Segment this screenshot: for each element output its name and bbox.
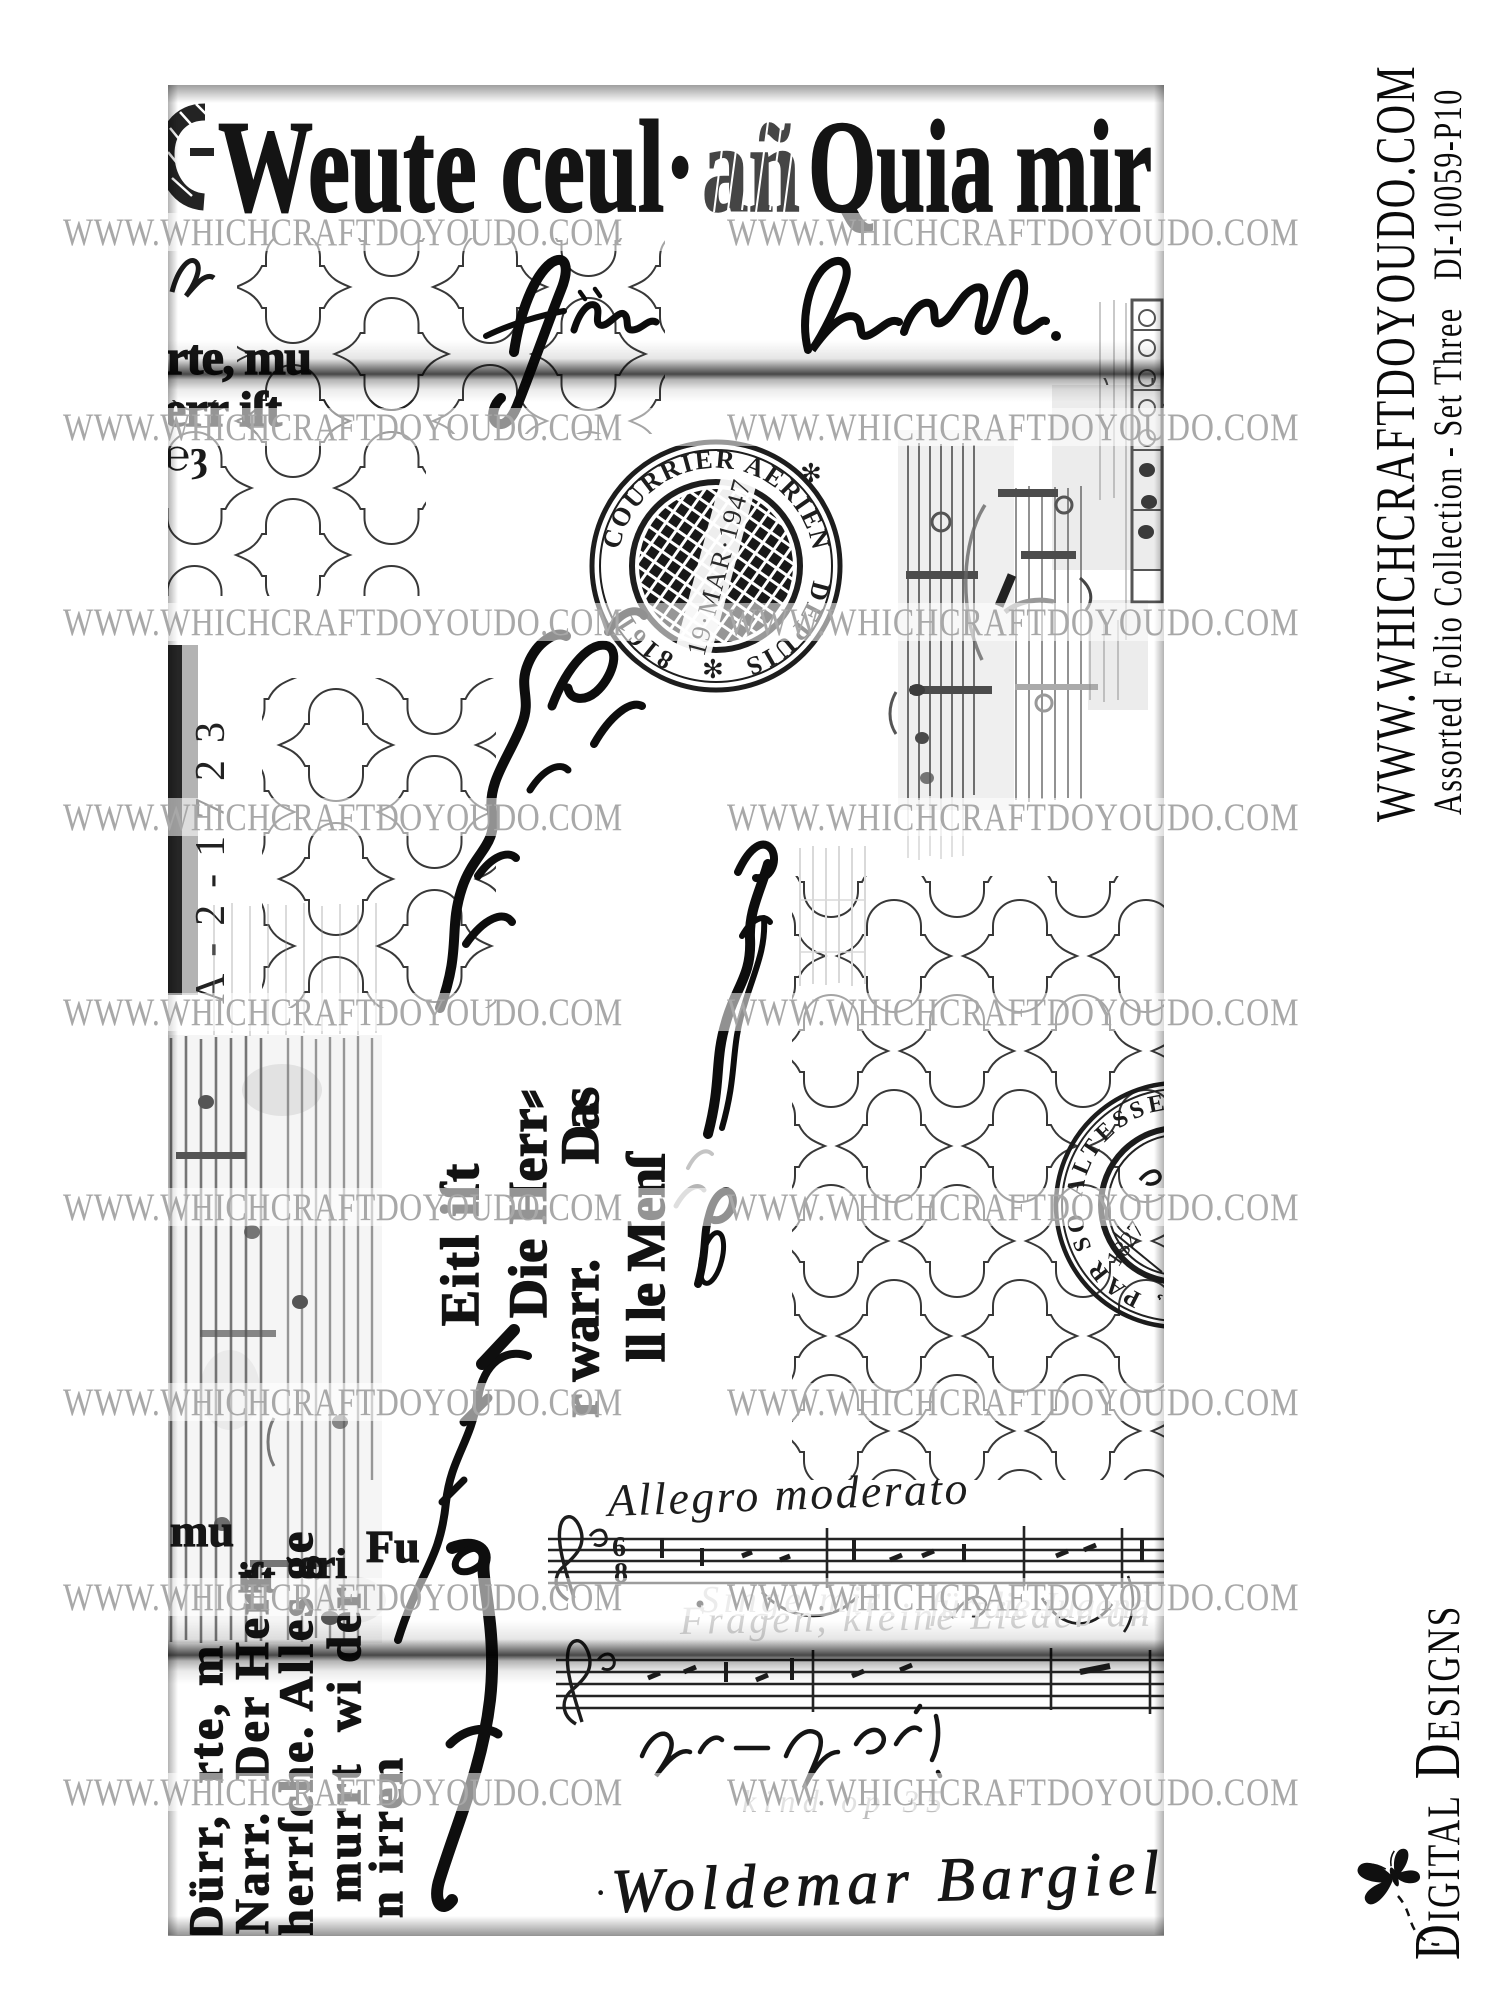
- svg-text:✻: ✻: [702, 655, 724, 684]
- svg-text:ll le Menſ: ll le Menſ: [616, 1150, 676, 1362]
- svg-text:Allegro moderato: Allegro moderato: [604, 1462, 969, 1526]
- svg-text:WWW.WHICHCRAFTDOYOUDO.COM: WWW.WHICHCRAFTDOYOUDO.COM: [727, 990, 1299, 1034]
- svg-text:Assorted Folio Collection - Se: Assorted Folio Collection - Set Three DI…: [1425, 90, 1470, 815]
- svg-text:✻: ✻: [800, 459, 822, 488]
- svg-text:WWW.WHICHCRAFTDOYOUDO.COM: WWW.WHICHCRAFTDOYOUDO.COM: [727, 795, 1299, 839]
- svg-text:WWW.WHICHCRAFTDOYOUDO.COM: WWW.WHICHCRAFTDOYOUDO.COM: [63, 990, 622, 1034]
- svg-text:Fu: Fu: [366, 1521, 420, 1572]
- svg-text:Das: Das: [550, 1084, 610, 1164]
- svg-text:WWW.WHICHCRAFTDOYOUDO.COM: WWW.WHICHCRAFTDOYOUDO.COM: [63, 1185, 622, 1229]
- svg-text:Woldemar Bargiel: Woldemar Bargiel: [610, 1839, 1160, 1926]
- svg-text:WWW.WHICHCRAFTDOYOUDO.COM: WWW.WHICHCRAFTDOYOUDO.COM: [727, 600, 1299, 644]
- svg-text:WWW.WHICHCRAFTDOYOUDO.COM: WWW.WHICHCRAFTDOYOUDO.COM: [63, 795, 622, 839]
- svg-text:WWW.WHICHCRAFTDOYOUDO.COM: WWW.WHICHCRAFTDOYOUDO.COM: [727, 1185, 1299, 1229]
- svg-text:WWW.WHICHCRAFTDOYOUDO.COM: WWW.WHICHCRAFTDOYOUDO.COM: [727, 1575, 1299, 1619]
- svg-text:WWW.WHICHCRAFTDOYOUDO.COM: WWW.WHICHCRAFTDOYOUDO.COM: [727, 1770, 1299, 1814]
- svg-text:WWW.WHICHCRAFTDOYOUDO.COM: WWW.WHICHCRAFTDOYOUDO.COM: [63, 1575, 622, 1619]
- svg-text:WWW.WHICHCRAFTDOYOUDO.COM: WWW.WHICHCRAFTDOYOUDO.COM: [63, 210, 622, 254]
- svg-text:mu: mu: [170, 1505, 234, 1556]
- svg-text:WWW.WHICHCRAFTDOYOUDO.COM: WWW.WHICHCRAFTDOYOUDO.COM: [63, 1770, 622, 1814]
- svg-text:.: .: [1184, 1664, 1192, 1697]
- svg-text:WWW.WHICHCRAFTDOYOUDO.COM: WWW.WHICHCRAFTDOYOUDO.COM: [727, 210, 1299, 254]
- svg-text:·: ·: [594, 1870, 607, 1915]
- svg-text:WWW.WHICHCRAFTDOYOUDO.COM: WWW.WHICHCRAFTDOYOUDO.COM: [727, 405, 1299, 449]
- svg-text:WWW.WHICHCRAFTDOYOUDO.COM: WWW.WHICHCRAFTDOYOUDO.COM: [63, 600, 622, 644]
- svg-text:WWW.WHICHCRAFTDOYOUDO.COM: WWW.WHICHCRAFTDOYOUDO.COM: [63, 1380, 622, 1424]
- svg-text:WWW.WHICHCRAFTDOYOUDO.COM: WWW.WHICHCRAFTDOYOUDO.COM: [727, 1380, 1299, 1424]
- svg-text:WWW.WHICHCRAFTDOYOUDO.COM: WWW.WHICHCRAFTDOYOUDO.COM: [63, 405, 622, 449]
- svg-text:DIGITAL DESIGNS: DIGITAL DESIGNS: [1400, 1604, 1474, 1960]
- svg-text:WWW.WHICHCRAFTDOYOUDO.COM: WWW.WHICHCRAFTDOYOUDO.COM: [1364, 66, 1427, 822]
